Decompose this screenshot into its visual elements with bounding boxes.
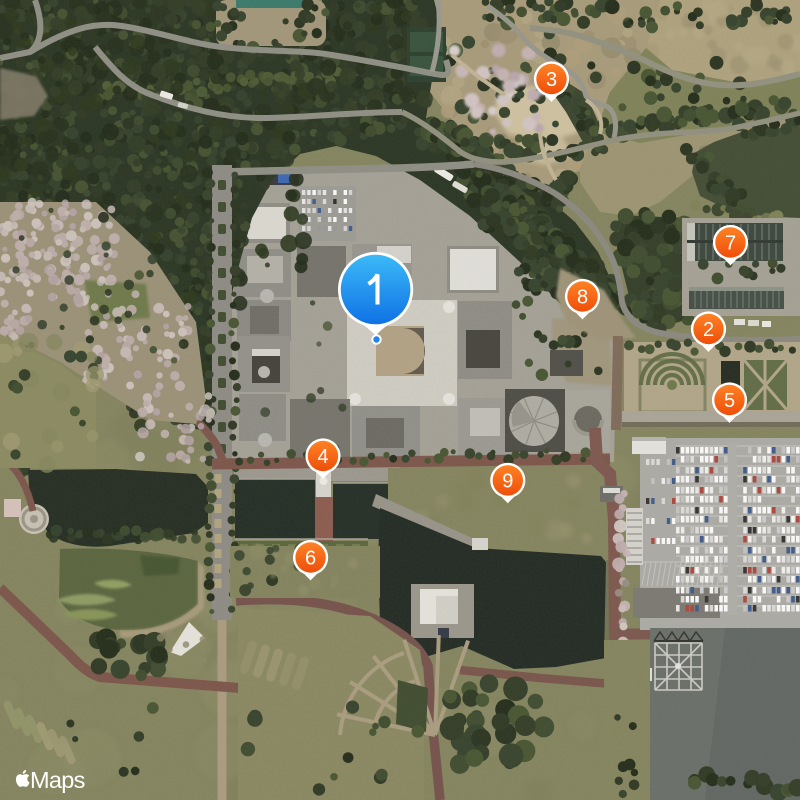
- svg-text:4: 4: [317, 446, 328, 468]
- svg-text:2: 2: [703, 319, 714, 341]
- svg-text:3: 3: [546, 69, 557, 91]
- svg-text:9: 9: [502, 470, 513, 492]
- svg-text:7: 7: [725, 233, 736, 255]
- svg-text:Maps: Maps: [30, 767, 85, 793]
- svg-text:5: 5: [724, 390, 735, 412]
- svg-text:8: 8: [577, 287, 588, 309]
- svg-text:6: 6: [305, 548, 316, 570]
